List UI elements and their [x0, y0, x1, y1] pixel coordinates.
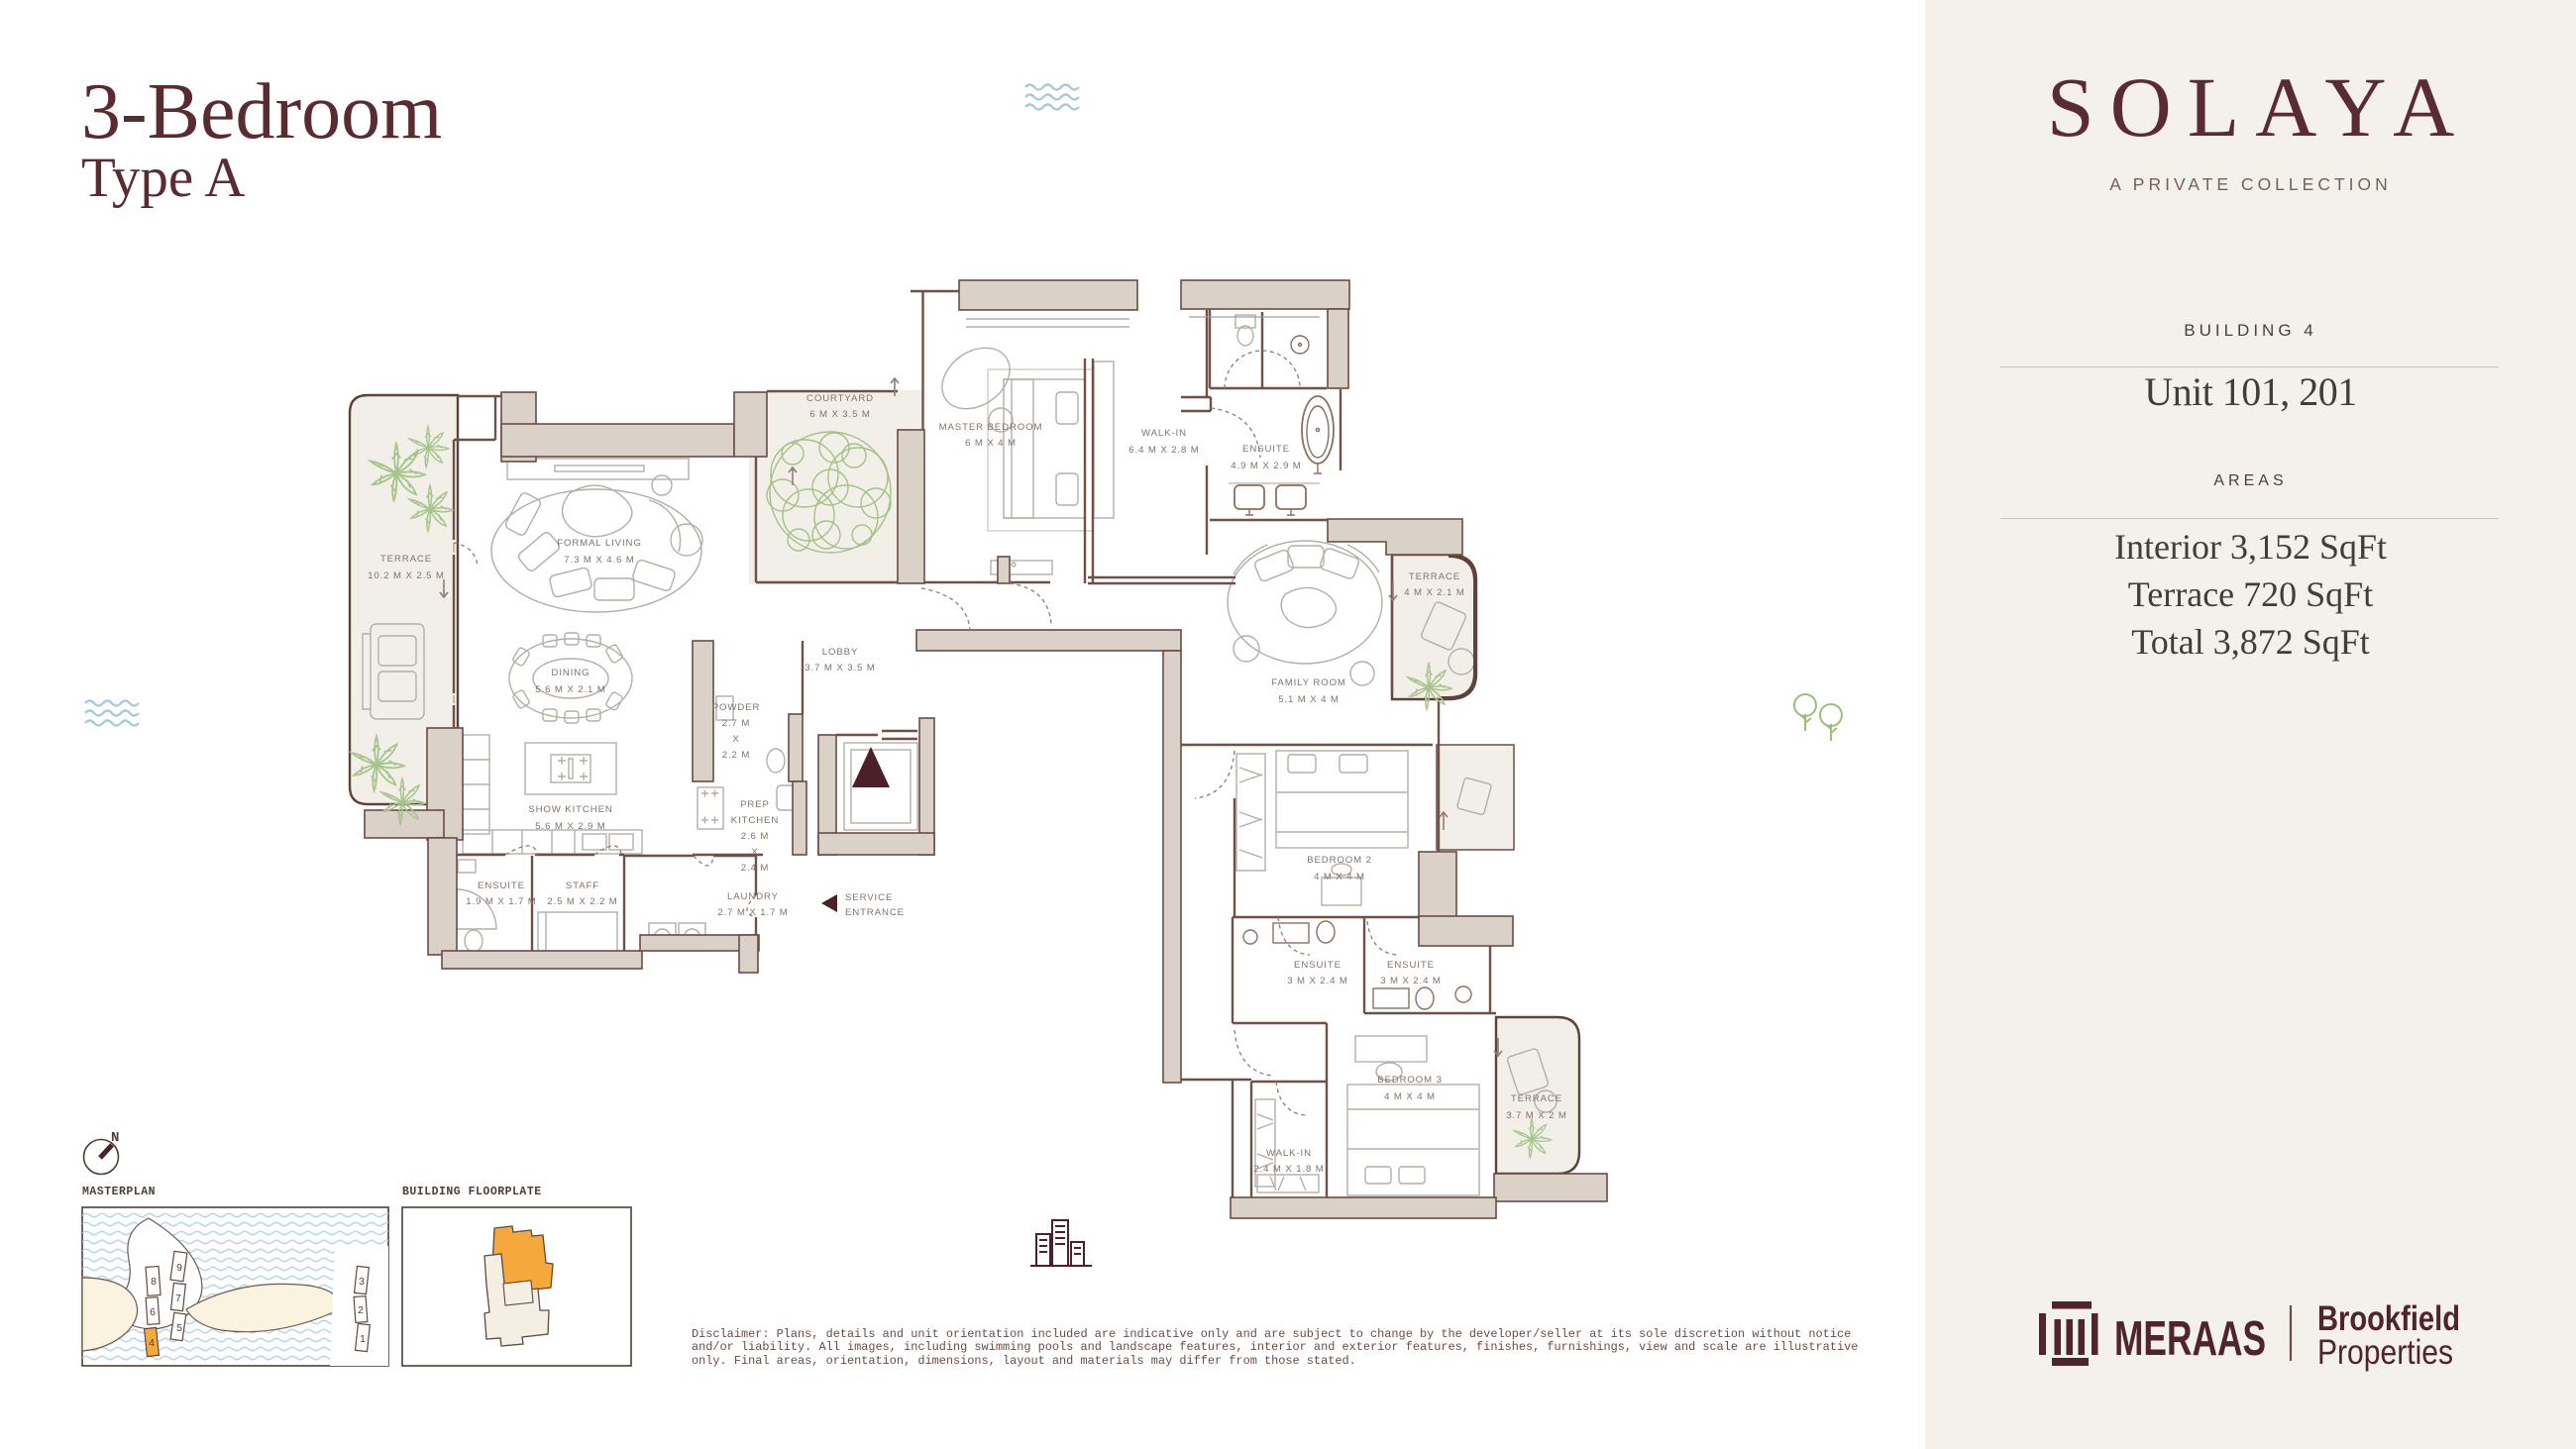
svg-text:4 M X 2.1 M: 4 M X 2.1 M: [1404, 587, 1465, 598]
svg-text:TERRACE: TERRACE: [1511, 1093, 1562, 1104]
svg-text:ENSUITE: ENSUITE: [478, 880, 525, 891]
svg-text:8: 8: [151, 1276, 157, 1288]
svg-text:2.5 M X 2.2 M: 2.5 M X 2.2 M: [547, 896, 617, 907]
svg-text:DINING: DINING: [552, 668, 590, 678]
svg-text:2.4 M X 1.8 M: 2.4 M X 1.8 M: [1253, 1164, 1324, 1175]
svg-text:2: 2: [358, 1304, 364, 1316]
svg-text:Properties: Properties: [2317, 1333, 2453, 1372]
svg-text:2.7 M X 1.7 M: 2.7 M X 1.7 M: [717, 907, 788, 918]
svg-text:N: N: [111, 1130, 119, 1146]
svg-text:1.9 M X 1.7 M: 1.9 M X 1.7 M: [466, 896, 536, 907]
svg-text:7: 7: [175, 1293, 181, 1304]
svg-text:BEDROOM 3: BEDROOM 3: [1377, 1075, 1443, 1086]
svg-text:9: 9: [176, 1262, 182, 1274]
svg-text:6 M X 4 M: 6 M X 4 M: [965, 438, 1017, 449]
svg-text:6.4 M X 2.8 M: 6.4 M X 2.8 M: [1128, 445, 1199, 456]
svg-text:TERRACE: TERRACE: [380, 554, 432, 565]
svg-text:MASTER BEDROOM: MASTER BEDROOM: [939, 422, 1043, 433]
svg-text:6: 6: [150, 1306, 156, 1318]
svg-text:2.2 M: 2.2 M: [722, 750, 751, 761]
svg-text:ENTRANCE: ENTRANCE: [845, 907, 905, 918]
svg-text:X: X: [751, 847, 758, 858]
svg-text:3 M X 2.4 M: 3 M X 2.4 M: [1287, 976, 1348, 986]
svg-text:3 M X 2.4 M: 3 M X 2.4 M: [1380, 976, 1442, 986]
svg-text:TERRACE: TERRACE: [1409, 571, 1460, 582]
svg-text:LOBBY: LOBBY: [822, 647, 859, 658]
svg-text:SHOW KITCHEN: SHOW KITCHEN: [528, 804, 612, 815]
svg-text:ENSUITE: ENSUITE: [1387, 960, 1435, 971]
svg-text:4 M X 4 M: 4 M X 4 M: [1384, 1091, 1436, 1102]
svg-text:5.6 M X 2.9 M: 5.6 M X 2.9 M: [535, 821, 605, 832]
svg-text:ENSUITE: ENSUITE: [1242, 444, 1290, 455]
svg-text:2.7 M: 2.7 M: [722, 718, 751, 729]
svg-text:3.7 M X 3.5 M: 3.7 M X 3.5 M: [805, 663, 875, 673]
svg-text:SERVICE: SERVICE: [845, 892, 893, 903]
svg-text:3.7 M X 2 M: 3.7 M X 2 M: [1506, 1110, 1567, 1121]
svg-text:4 M X 4 M: 4 M X 4 M: [1314, 872, 1365, 882]
svg-text:COURTYARD: COURTYARD: [806, 393, 874, 404]
svg-text:10.2 M X 2.5 M: 10.2 M X 2.5 M: [368, 570, 445, 581]
svg-text:WALK-IN: WALK-IN: [1141, 428, 1187, 439]
svg-text:5.1 M X 4 M: 5.1 M X 4 M: [1278, 694, 1340, 705]
svg-text:1: 1: [360, 1333, 366, 1345]
svg-text:POWDER: POWDER: [712, 702, 761, 713]
svg-text:3: 3: [359, 1276, 365, 1288]
svg-text:4: 4: [149, 1337, 155, 1349]
svg-text:FORMAL LIVING: FORMAL LIVING: [557, 538, 641, 549]
svg-text:5: 5: [176, 1322, 182, 1334]
svg-text:LAUNDRY: LAUNDRY: [727, 891, 779, 902]
svg-text:KITCHEN: KITCHEN: [731, 815, 779, 826]
svg-text:5.6 M X 2.1 M: 5.6 M X 2.1 M: [535, 684, 605, 695]
svg-text:ENSUITE: ENSUITE: [1294, 960, 1342, 971]
svg-text:2.4 M: 2.4 M: [741, 863, 770, 874]
svg-text:PREP: PREP: [740, 799, 770, 810]
svg-text:BEDROOM 2: BEDROOM 2: [1307, 855, 1372, 866]
svg-text:4.9 M X 2.9 M: 4.9 M X 2.9 M: [1231, 461, 1301, 471]
svg-text:MERAAS: MERAAS: [2114, 1312, 2266, 1366]
svg-text:7.3 M X 4.6 M: 7.3 M X 4.6 M: [564, 555, 634, 566]
svg-text:STAFF: STAFF: [566, 880, 599, 891]
svg-text:WALK-IN: WALK-IN: [1266, 1148, 1312, 1159]
svg-text:2.6 M: 2.6 M: [741, 831, 770, 842]
svg-text:6 M X 3.5 M: 6 M X 3.5 M: [809, 409, 871, 420]
svg-text:FAMILY ROOM: FAMILY ROOM: [1271, 677, 1346, 688]
svg-text:X: X: [732, 734, 739, 745]
